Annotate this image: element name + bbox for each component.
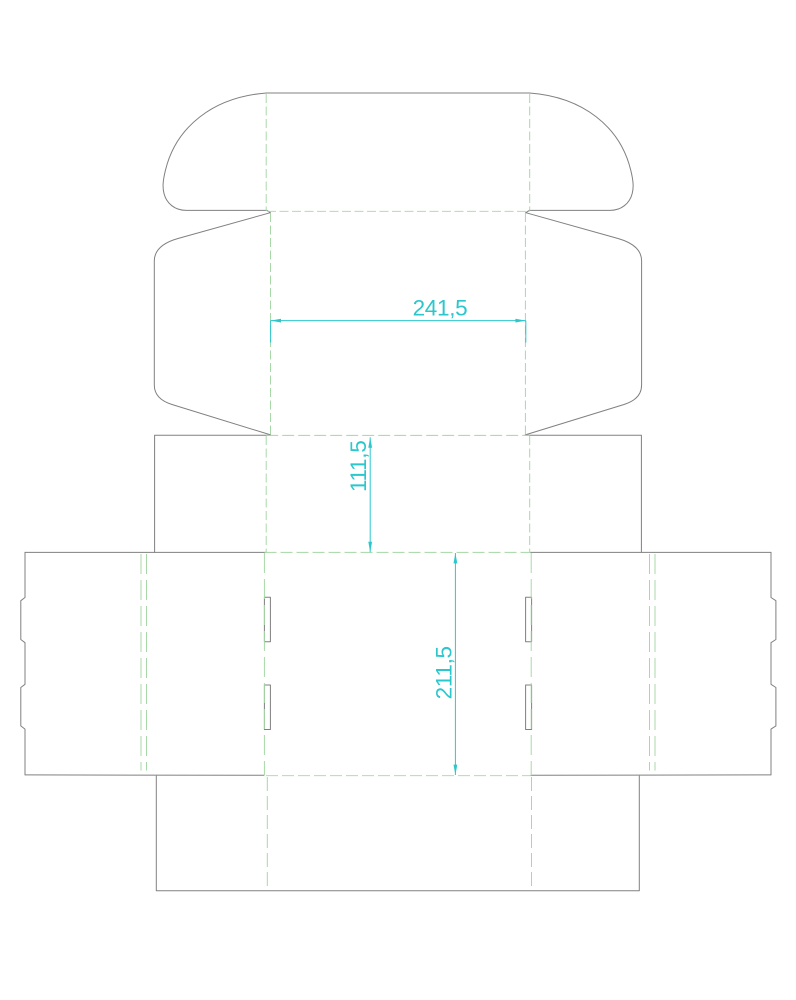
- svg-text:211,5: 211,5: [432, 646, 457, 699]
- svg-text:241,5: 241,5: [413, 296, 468, 321]
- svg-text:111,5: 111,5: [346, 441, 371, 492]
